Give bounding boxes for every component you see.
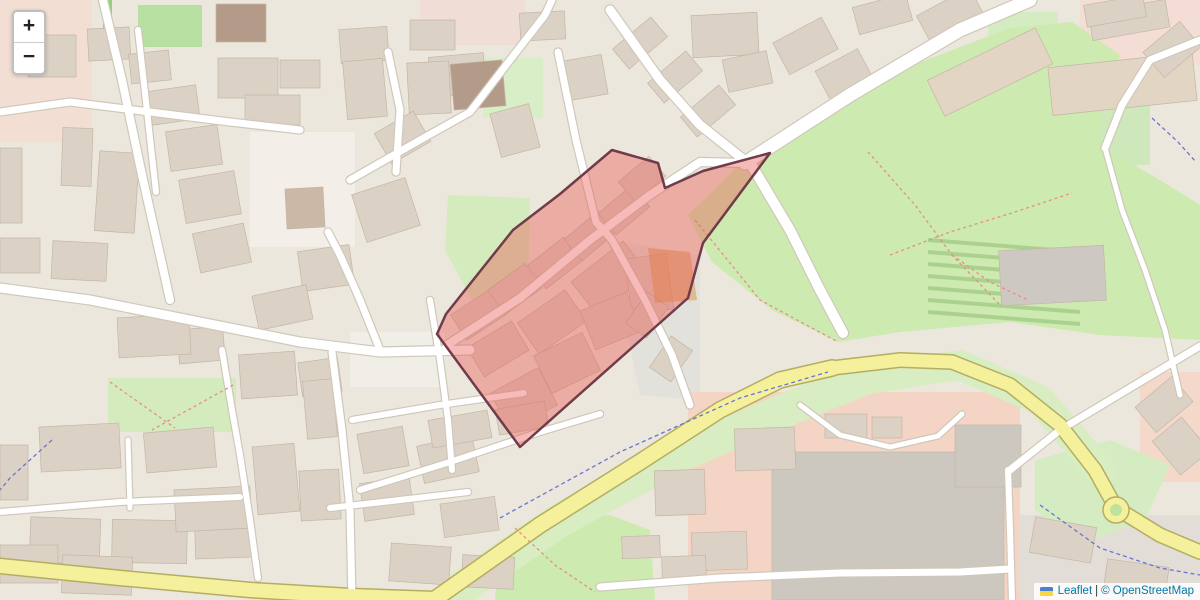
map-labels-layer <box>0 0 1200 600</box>
ukraine-flag-icon <box>1040 587 1053 596</box>
attribution-bar: Leaflet | © OpenStreetMap <box>1034 583 1200 600</box>
leaflet-link[interactable]: Leaflet <box>1058 585 1093 597</box>
osm-link[interactable]: © OpenStreetMap <box>1101 585 1194 597</box>
attribution-separator: | <box>1095 585 1098 597</box>
zoom-out-button[interactable]: − <box>14 43 44 73</box>
map-canvas[interactable]: + − Leaflet | © OpenStreetMap <box>0 0 1200 600</box>
zoom-control: + − <box>12 10 46 75</box>
zoom-in-button[interactable]: + <box>14 12 44 43</box>
